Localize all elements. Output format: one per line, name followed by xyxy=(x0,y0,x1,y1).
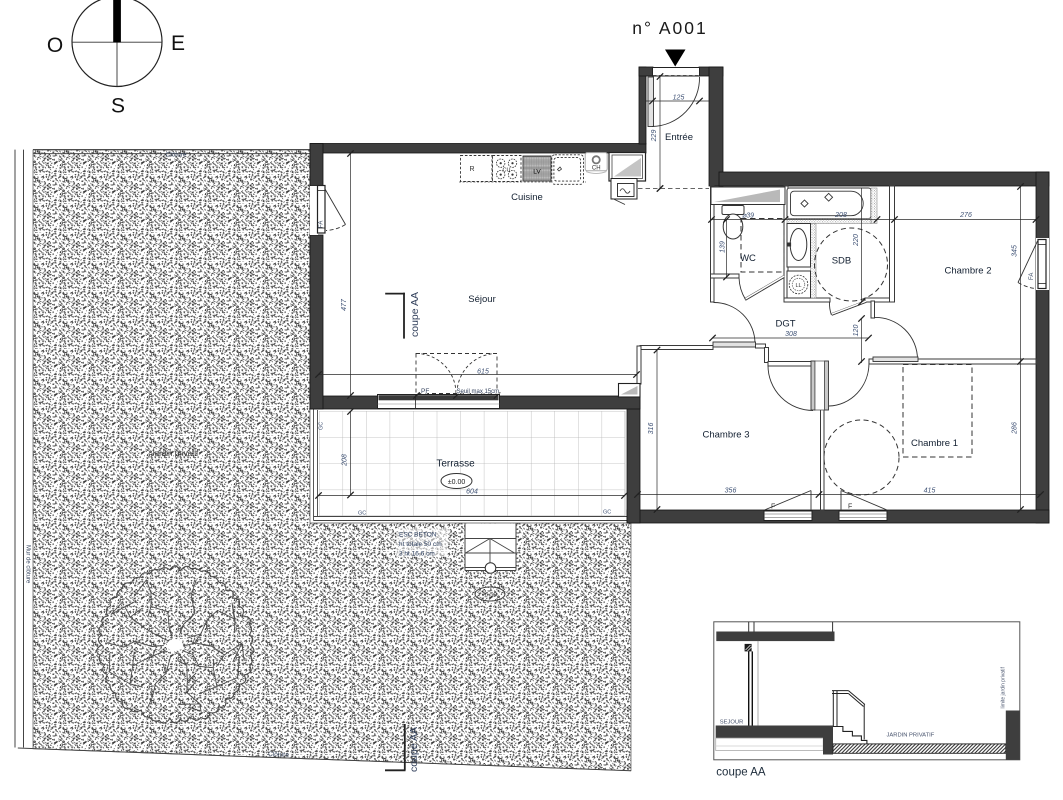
svg-text:GC: GC xyxy=(319,422,325,430)
svg-text:JARDIN PRIVATIF: JARDIN PRIVATIF xyxy=(887,733,935,739)
svg-text:ESC BETON: ESC BETON xyxy=(399,532,437,539)
svg-text:O: O xyxy=(47,34,63,57)
svg-text:3 ht 16.6 cm: 3 ht 16.6 cm xyxy=(399,551,435,558)
svg-text:229: 229 xyxy=(651,130,658,143)
svg-text:E: E xyxy=(171,32,185,55)
svg-text:125: 125 xyxy=(673,95,685,102)
svg-text:R: R xyxy=(469,166,474,173)
svg-text:DGT: DGT xyxy=(775,319,795,330)
svg-text:208: 208 xyxy=(834,212,847,219)
svg-text:120: 120 xyxy=(853,325,860,337)
svg-text:308: 308 xyxy=(785,331,797,338)
svg-text:CU: CU xyxy=(503,168,511,174)
svg-text:LL: LL xyxy=(795,283,801,289)
svg-text:615: 615 xyxy=(477,369,489,376)
svg-text:286: 286 xyxy=(1012,422,1019,435)
svg-text:604: 604 xyxy=(466,489,478,496)
svg-text:Mur de clôture: Mur de clôture xyxy=(25,545,31,584)
svg-text:220: 220 xyxy=(853,234,860,247)
svg-text:-0.50: -0.50 xyxy=(483,593,497,599)
svg-text:139: 139 xyxy=(720,241,727,253)
svg-text:limite jardin privatif: limite jardin privatif xyxy=(1001,666,1007,708)
svg-text:coupe AA: coupe AA xyxy=(716,767,766,779)
svg-text:GC: GC xyxy=(603,510,611,516)
svg-text:Clôture: Clôture xyxy=(268,751,290,759)
svg-text:FA: FA xyxy=(319,221,325,228)
svg-text:GC: GC xyxy=(358,511,366,517)
svg-text:±0.00: ±0.00 xyxy=(448,479,466,486)
svg-text:S: S xyxy=(111,95,125,118)
svg-text:FA: FA xyxy=(1029,273,1035,280)
svg-text:316: 316 xyxy=(648,423,655,435)
svg-text:415: 415 xyxy=(924,488,936,495)
svg-text:Seuil max 15cm: Seuil max 15cm xyxy=(457,389,500,395)
svg-text:Clôture: Clôture xyxy=(166,152,187,159)
svg-text:477: 477 xyxy=(341,298,348,311)
svg-text:WC: WC xyxy=(740,253,756,264)
svg-text:Chambre 2: Chambre 2 xyxy=(945,266,992,277)
svg-text:LV: LV xyxy=(533,169,541,176)
svg-text:PF: PF xyxy=(421,388,429,395)
svg-text:F: F xyxy=(771,504,775,511)
svg-text:SEJOUR: SEJOUR xyxy=(720,720,744,726)
svg-text:F: F xyxy=(848,504,852,511)
svg-text:coupe AA: coupe AA xyxy=(408,727,420,772)
svg-text:208: 208 xyxy=(342,454,349,467)
svg-text:SDB: SDB xyxy=(832,256,852,267)
svg-text:coupe AA: coupe AA xyxy=(409,292,421,337)
svg-text:Séjour: Séjour xyxy=(468,294,495,305)
svg-text:CH: CH xyxy=(592,166,601,172)
svg-text:Chambre 1: Chambre 1 xyxy=(911,438,958,449)
svg-text:Cuisine: Cuisine xyxy=(511,192,543,203)
svg-text:Terrasse: Terrasse xyxy=(436,459,475,470)
svg-text:⌀39: ⌀39 xyxy=(742,213,754,220)
svg-text:Chambre 3: Chambre 3 xyxy=(703,430,750,441)
svg-text:ht totale 50 cm: ht totale 50 cm xyxy=(399,541,442,548)
svg-text:345: 345 xyxy=(1012,245,1019,257)
svg-text:356: 356 xyxy=(725,488,737,495)
svg-text:n° A001: n° A001 xyxy=(632,18,708,38)
svg-text:Jardin privatif: Jardin privatif xyxy=(151,449,199,458)
svg-text:276: 276 xyxy=(959,212,972,219)
svg-text:Entrée: Entrée xyxy=(665,132,693,143)
